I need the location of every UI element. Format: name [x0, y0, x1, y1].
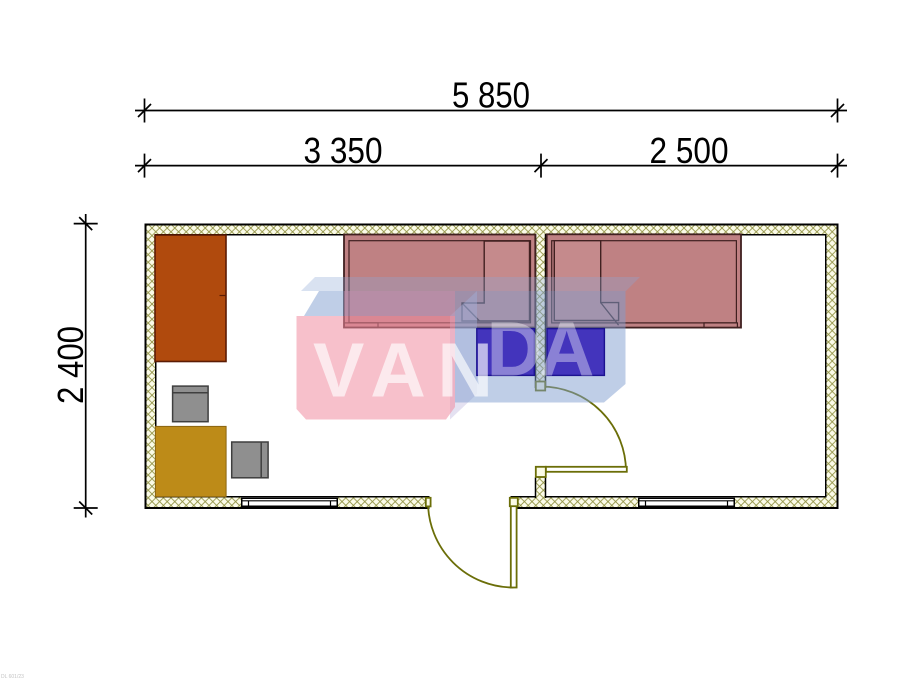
svg-text:3 350: 3 350 [304, 130, 383, 171]
svg-text:2 500: 2 500 [650, 130, 729, 171]
svg-text:5 850: 5 850 [452, 74, 530, 115]
svg-text:2 400: 2 400 [50, 326, 91, 404]
svg-text:DL 601/23: DL 601/23 [1, 674, 24, 680]
svg-text:VAN: VAN [313, 328, 493, 414]
svg-text:DA: DA [487, 307, 595, 393]
